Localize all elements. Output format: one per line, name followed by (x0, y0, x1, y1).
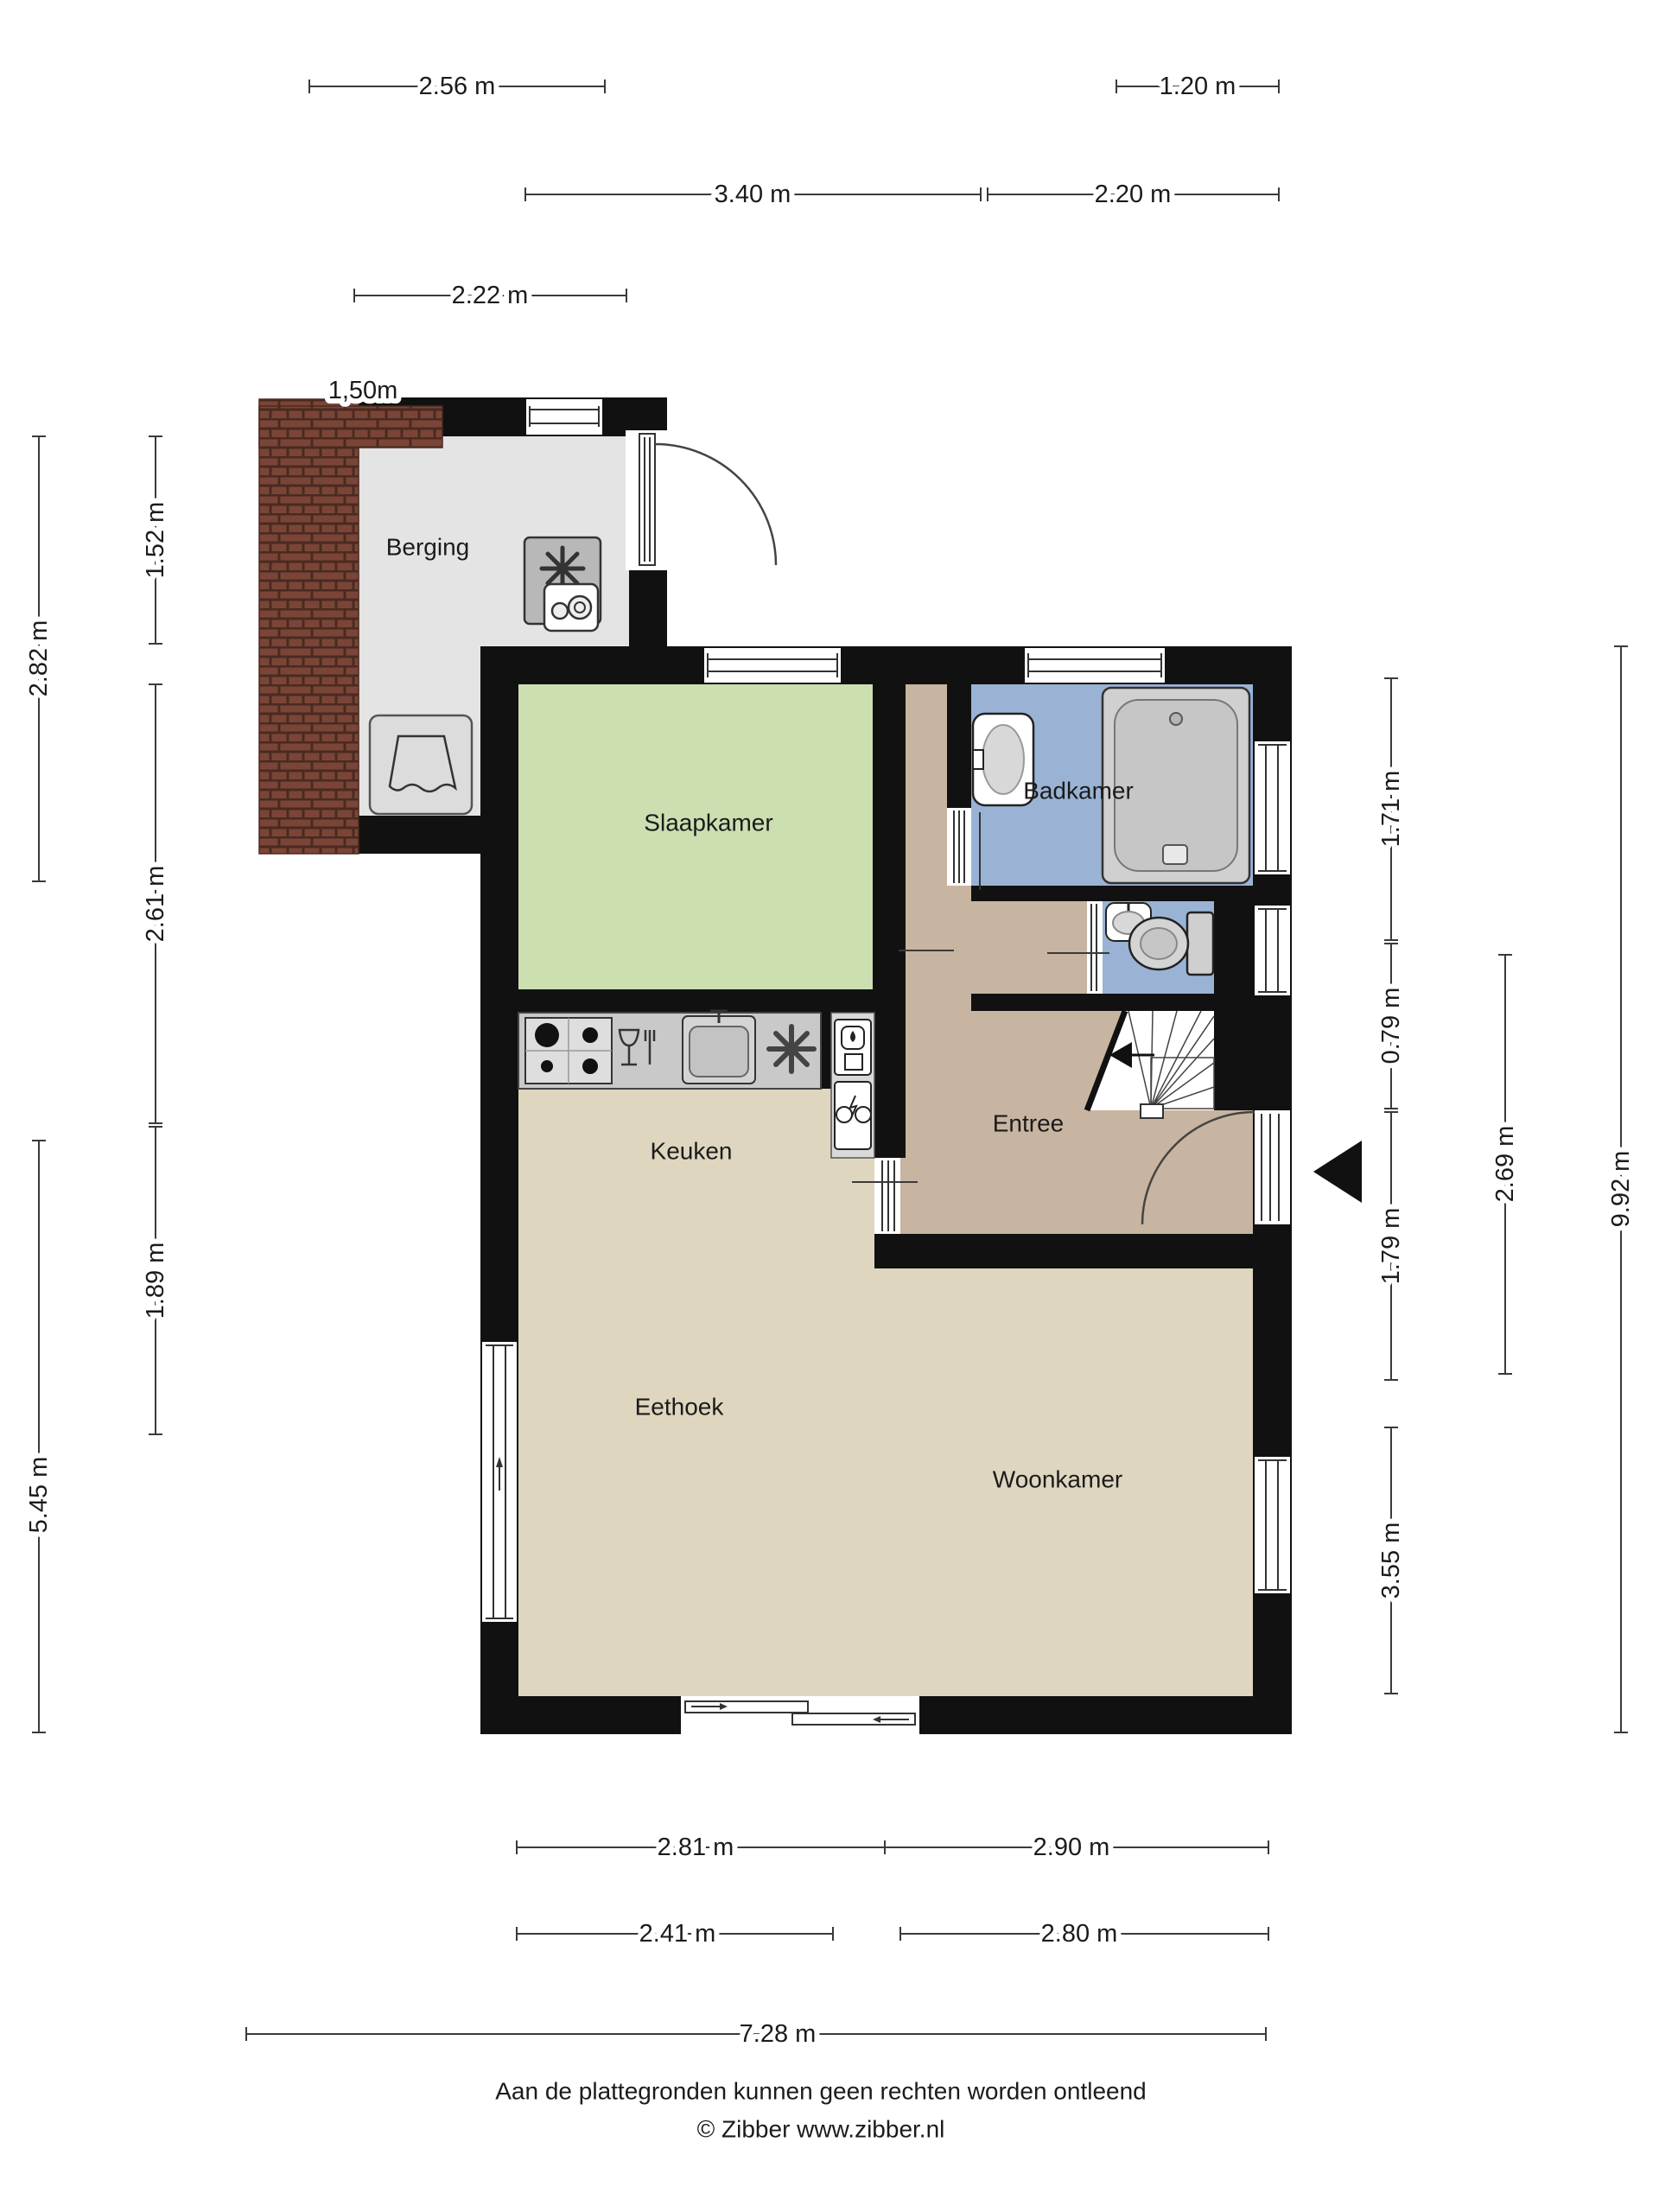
dim-label: 2.56 m (419, 73, 496, 100)
annotation-1-50m: 1,50m (328, 377, 398, 404)
door-leaf (639, 434, 655, 565)
toilet-right-window (1255, 906, 1290, 995)
room-label-entree: Entree (993, 1110, 1065, 1137)
window-gap (526, 399, 602, 435)
dim-label: 1.20 m (1160, 73, 1236, 100)
eethoek-window (482, 1342, 517, 1622)
dim-label: 1.71 m (1377, 771, 1405, 848)
faucet (973, 750, 983, 769)
hall-corridor-floor (906, 684, 947, 907)
heater-unit-icon (524, 537, 601, 631)
tank-port (569, 596, 591, 619)
window-gap (1255, 1457, 1290, 1593)
toilet-icon (1129, 912, 1213, 975)
stair-start-marker (1141, 1104, 1163, 1118)
stove-icon (525, 1018, 612, 1084)
main-top-wall (480, 646, 1292, 684)
window-gap (1255, 741, 1290, 874)
footer-disclaimer: Aan de plattegronden kunnen geen rechten… (495, 2078, 1146, 2105)
meter-dial (855, 1107, 871, 1122)
boiler-box (835, 1020, 871, 1075)
room-label-slaapkamer: Slaapkamer (644, 810, 772, 836)
window-gap (704, 648, 841, 683)
tub-drain (1170, 713, 1182, 725)
dim-label: 2.61 m (142, 866, 169, 943)
partition-gap (1087, 901, 1103, 994)
dim-label: 0.79 m (1377, 988, 1405, 1065)
electric-meter-icon (835, 1082, 871, 1149)
room-label-keuken: Keuken (651, 1138, 733, 1165)
toilet-tank (1187, 912, 1213, 975)
keuken-partition (876, 1158, 900, 1234)
kitchen-sink-icon (683, 1011, 755, 1084)
dim-label: 2.82 m (25, 620, 53, 697)
window-gap (1025, 648, 1165, 683)
kitchen-counter (518, 1011, 821, 1089)
sink-basin (982, 725, 1024, 794)
slaapkamer-right-wall (873, 684, 906, 989)
keuken-entree-wall (874, 989, 906, 1158)
badkamer-bottom-wall (971, 886, 1253, 901)
berging-window (526, 399, 602, 435)
boiler-icon (835, 1020, 871, 1075)
dim-label: 1.52 m (142, 502, 169, 579)
stair-side-wall (1214, 901, 1253, 1110)
dim-label: 2.90 m (1033, 1834, 1110, 1861)
footer-copyright: © Zibber www.zibber.nl (697, 2116, 945, 2143)
dim-label: 2.20 m (1095, 181, 1172, 208)
slaapkamer-window (704, 648, 841, 683)
hall-vestibule-floor (906, 886, 1087, 994)
tub-faucet (1163, 845, 1187, 864)
dim-label: 1.79 m (1377, 1208, 1405, 1285)
floorplan-svg: Berging Slaapkamer Badkamer Entree Keuke… (0, 0, 1659, 2212)
dim-label: 2.22 m (452, 282, 529, 309)
hatch-icon (370, 715, 472, 814)
badkamer-window (1025, 648, 1165, 683)
hatch-flap (390, 736, 455, 791)
dim-label: 3.40 m (715, 181, 791, 208)
window-gap (1255, 906, 1290, 995)
toilet-partition (1087, 901, 1103, 994)
dim-label: 2.69 m (1491, 1126, 1519, 1203)
door-gap (1255, 1110, 1290, 1224)
dim-label: 2.81 m (658, 1834, 734, 1861)
burner (535, 1023, 559, 1047)
meter-niche (831, 1013, 874, 1158)
dim-label: 2.41 m (639, 1920, 716, 1948)
brick-column (259, 399, 359, 854)
sink-basin (690, 1027, 748, 1077)
room-label-woonkamer: Woonkamer (993, 1466, 1122, 1493)
woonkamer-right-window (1255, 1457, 1290, 1593)
dim-label: 9.92 m (1607, 1151, 1635, 1228)
tank-port-small (552, 603, 568, 619)
floorplan-page: Berging Slaapkamer Badkamer Entree Keuke… (0, 0, 1659, 2212)
room-label-eethoek: Eethoek (635, 1394, 725, 1421)
room-label-berging: Berging (386, 534, 470, 561)
room-label-badkamer: Badkamer (1023, 778, 1134, 804)
meter-dial (836, 1107, 852, 1122)
badkamer-right-window (1255, 741, 1290, 874)
slaapkamer-floor (518, 684, 873, 989)
sliding-door (681, 1696, 919, 1734)
dim-label: 3.55 m (1377, 1522, 1405, 1599)
badkamer-left-wall (947, 684, 971, 808)
dim-label: 1.89 m (142, 1243, 169, 1319)
dim-label: 2.80 m (1041, 1920, 1118, 1948)
dim-label: 7.28 m (740, 2020, 817, 2048)
burner (541, 1060, 553, 1072)
toilet-bottom-wall (971, 994, 1214, 1011)
burner (582, 1058, 598, 1074)
fan-blades (769, 1027, 814, 1071)
burner (582, 1027, 598, 1043)
keuken-eethoek-floor (518, 1013, 874, 1696)
toilet-bowl-inner (1141, 928, 1177, 959)
entree-bottom-wall (874, 1234, 1253, 1268)
brick-top-bar (259, 406, 442, 448)
dim-label: 5.45 m (25, 1457, 53, 1534)
extractor-fan-icon (769, 1027, 814, 1071)
slaapkamer-bottom-wall (518, 989, 906, 1013)
